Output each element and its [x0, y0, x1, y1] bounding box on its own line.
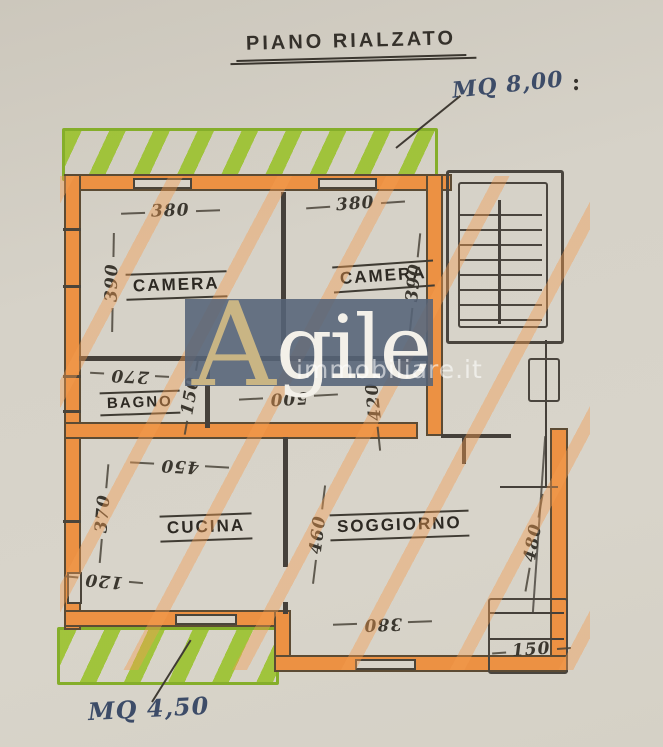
wall-middle	[66, 424, 416, 437]
dim-side-right: 480	[514, 487, 553, 599]
dim-cucina-width: 450	[125, 453, 236, 479]
wall-tick-3	[63, 375, 81, 378]
terrace-top-area-note: MQ 8,00	[451, 66, 565, 104]
wall-left	[66, 176, 79, 628]
watermark-site-text: immobiliare.it	[296, 355, 483, 384]
window-cucina	[175, 614, 237, 625]
punctuation-mark: :	[572, 70, 581, 96]
dim-camera-left-width: 380	[115, 199, 226, 223]
watermark-brand-initial: A	[192, 300, 276, 393]
wall-cucina-soggiorno	[283, 437, 288, 567]
floor-plan-sketch: PIANO RIALZATO MQ 8,00 : MQ 4,50 CAM	[0, 0, 663, 747]
wall-tick-5	[63, 520, 81, 523]
room-label-bagno: BAGNO	[100, 390, 181, 417]
stair-landing-line	[500, 486, 558, 488]
window-soggiorno	[355, 659, 416, 670]
dim-cucina-depth: 370	[88, 458, 118, 569]
room-label-soggiorno: SOGGIORNO	[330, 510, 470, 542]
wall-tick-2	[63, 285, 81, 288]
wall-soggiorno-door-jamb	[462, 434, 466, 464]
plan-title: PIANO RIALZATO	[236, 25, 467, 62]
dim-camera-right-width: 380	[299, 190, 410, 218]
entry-landing-outline	[488, 598, 568, 674]
wall-tick-4	[63, 410, 81, 413]
dim-soggiorno-window: 380	[328, 612, 439, 636]
staircase-divider	[498, 200, 501, 324]
terrace-bottom-area-note: MQ 4,50	[87, 691, 210, 726]
wall-cucina-soggiorno-stub	[283, 602, 288, 614]
stair-landing-door	[528, 358, 560, 402]
entry-landing-line-1	[490, 612, 564, 614]
dim-camera-left-depth: 390	[101, 228, 123, 338]
window-camera-left	[133, 178, 192, 189]
window-camera-right	[318, 178, 377, 189]
room-label-cucina: CUCINA	[160, 512, 253, 542]
wall-top	[66, 176, 450, 189]
wall-tick-1	[63, 228, 81, 231]
terrace-top	[62, 128, 438, 181]
staircase-treads	[460, 214, 542, 322]
dim-bagno-width: 270	[91, 364, 176, 388]
wall-soggiorno-top	[441, 434, 511, 438]
